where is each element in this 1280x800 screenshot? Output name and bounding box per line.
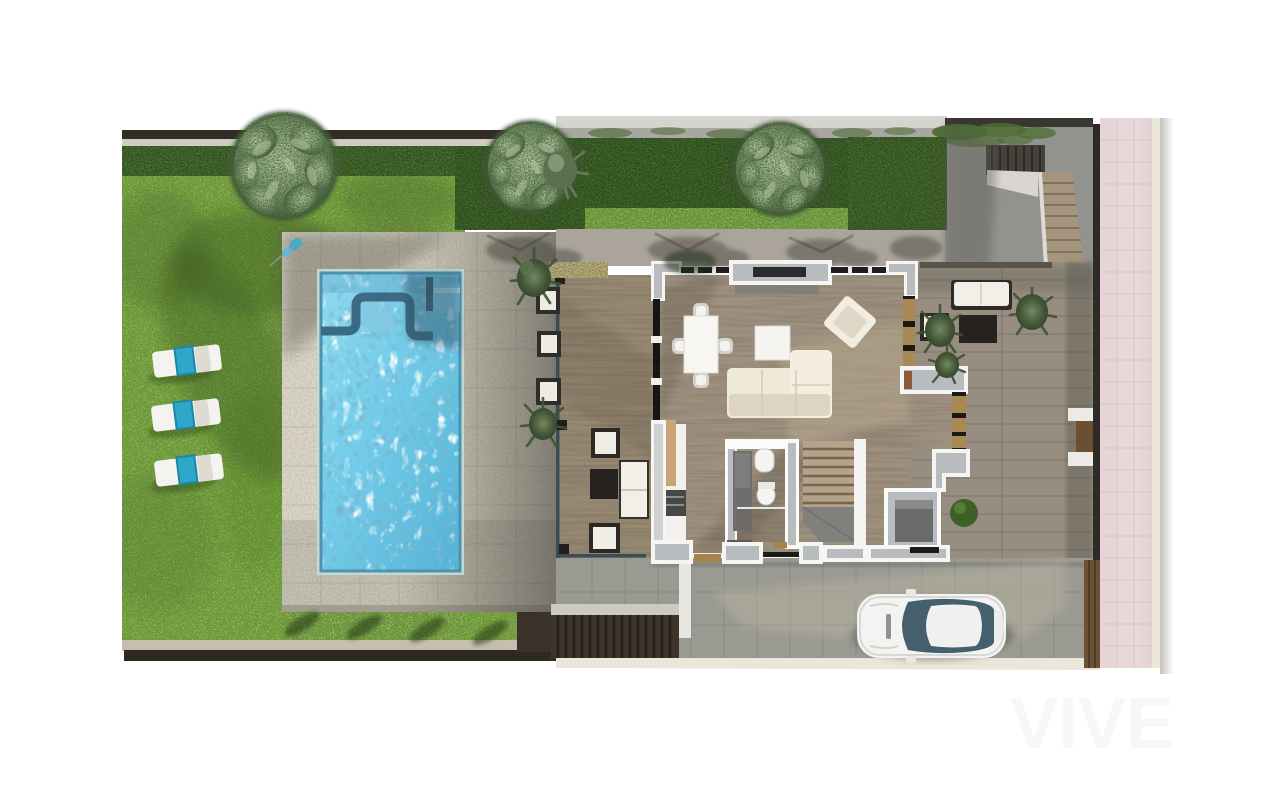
svg-text:VIVE: VIVE xyxy=(1010,684,1174,764)
